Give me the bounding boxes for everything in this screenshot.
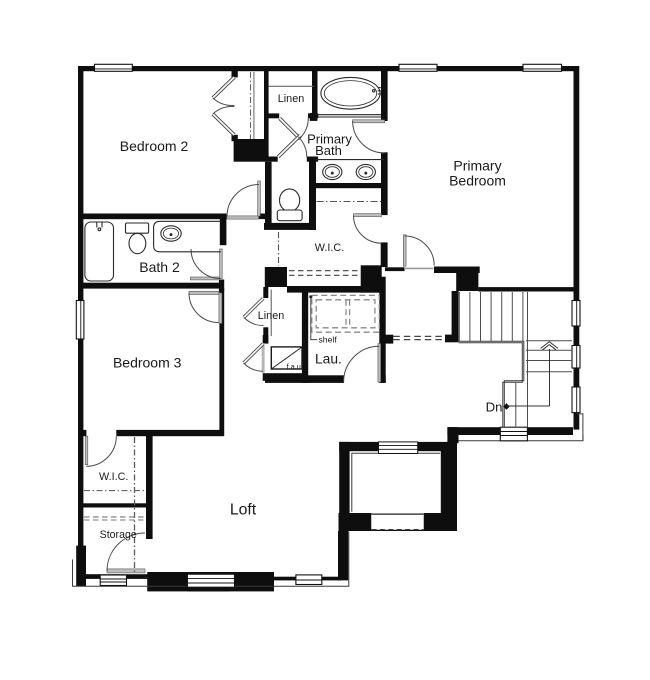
svg-text:Primary: Primary	[453, 157, 501, 173]
svg-text:Storage: Storage	[100, 529, 137, 541]
svg-text:Bath: Bath	[315, 143, 342, 158]
svg-text:Linen: Linen	[258, 310, 284, 322]
svg-text:Dn: Dn	[486, 399, 503, 414]
svg-text:W.I.C.: W.I.C.	[315, 242, 344, 254]
svg-text:Bedroom 2: Bedroom 2	[120, 138, 189, 154]
svg-text:Bedroom 3: Bedroom 3	[113, 355, 182, 371]
svg-text:shelf: shelf	[319, 334, 338, 344]
svg-text:W.I.C.: W.I.C.	[99, 471, 128, 483]
svg-text:Linen: Linen	[278, 93, 304, 105]
svg-text:Lau.: Lau.	[315, 352, 342, 367]
svg-text:Bath 2: Bath 2	[139, 259, 180, 275]
svg-text:Bedroom: Bedroom	[449, 173, 506, 189]
svg-text:Loft: Loft	[230, 501, 257, 518]
svg-text:f.a.u: f.a.u	[287, 362, 301, 371]
